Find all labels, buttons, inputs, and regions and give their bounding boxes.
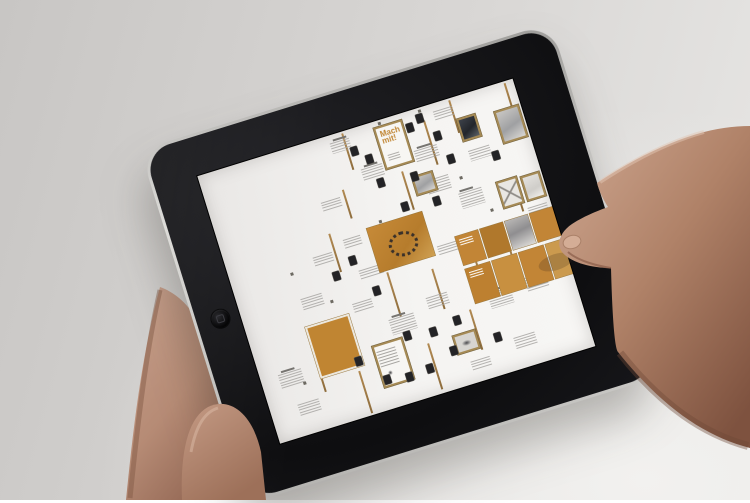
right-hand-top-highlight bbox=[600, 132, 704, 182]
screen-item-thumb[interactable] bbox=[403, 330, 412, 341]
screen-item-text bbox=[433, 106, 455, 121]
screen-item-thumb[interactable] bbox=[429, 327, 438, 338]
screen-item-text bbox=[321, 197, 343, 212]
front-finger-highlight bbox=[191, 408, 218, 452]
screen-item-orange[interactable] bbox=[305, 314, 365, 379]
screen-item-thumb[interactable] bbox=[493, 332, 502, 343]
screen-item-ring[interactable] bbox=[366, 211, 435, 272]
screen-item-speck bbox=[290, 272, 294, 276]
ipad: Mach mit! bbox=[140, 23, 660, 503]
home-button[interactable] bbox=[209, 307, 232, 330]
screen-item-thumb[interactable] bbox=[452, 315, 461, 326]
slide-title-lines bbox=[469, 268, 484, 279]
screen-item-thumb[interactable] bbox=[432, 196, 441, 207]
screen-item-text bbox=[468, 145, 492, 162]
screen-item-text bbox=[297, 398, 322, 416]
screen-item-vline bbox=[386, 272, 402, 317]
slide-title-lines bbox=[459, 236, 474, 247]
rounded-square-icon bbox=[215, 314, 225, 324]
screen-item-text bbox=[343, 235, 363, 249]
screen-item-text bbox=[513, 332, 538, 350]
screen-item-thumb[interactable] bbox=[400, 201, 409, 212]
poster-title: Mach mit! bbox=[379, 124, 406, 144]
round-table-ring bbox=[385, 227, 421, 260]
screen-item-photopale[interactable] bbox=[520, 171, 547, 202]
screen-item-thumb[interactable] bbox=[491, 150, 500, 161]
screen-item-thumb[interactable] bbox=[376, 177, 385, 188]
screen-item-thumb[interactable] bbox=[405, 122, 414, 133]
screen-item-speck bbox=[459, 176, 463, 180]
screen-item-photo[interactable] bbox=[494, 104, 529, 144]
screen-item-text bbox=[300, 293, 325, 311]
ipad-screen[interactable]: Mach mit! bbox=[197, 79, 595, 444]
screen-item-text bbox=[426, 292, 451, 310]
poster-body-lines bbox=[388, 151, 402, 161]
photo-scene: Mach mit! bbox=[0, 0, 750, 500]
screen-item-thumb[interactable] bbox=[372, 285, 381, 296]
screen-item-vline bbox=[342, 190, 353, 219]
screen-item-text bbox=[352, 298, 374, 313]
ipad-bezel: Mach mit! bbox=[144, 27, 657, 500]
screen-item-speck bbox=[490, 208, 494, 212]
left-hand-edge-shade bbox=[130, 290, 160, 498]
screen-item-text bbox=[470, 356, 492, 371]
screen-item-thumb[interactable] bbox=[433, 131, 442, 142]
ipad-aluminum-rim: Mach mit! bbox=[140, 23, 660, 503]
screen-item-thumb[interactable] bbox=[446, 154, 455, 165]
screen-item-photodark[interactable] bbox=[456, 113, 482, 142]
screen-item-speck bbox=[330, 300, 334, 304]
screen-item-thumb[interactable] bbox=[350, 146, 359, 157]
screen-item-vline bbox=[358, 371, 373, 414]
screen-item-thumb[interactable] bbox=[348, 255, 357, 266]
screen-item-text bbox=[313, 252, 335, 267]
screen-item-speck bbox=[303, 381, 307, 385]
